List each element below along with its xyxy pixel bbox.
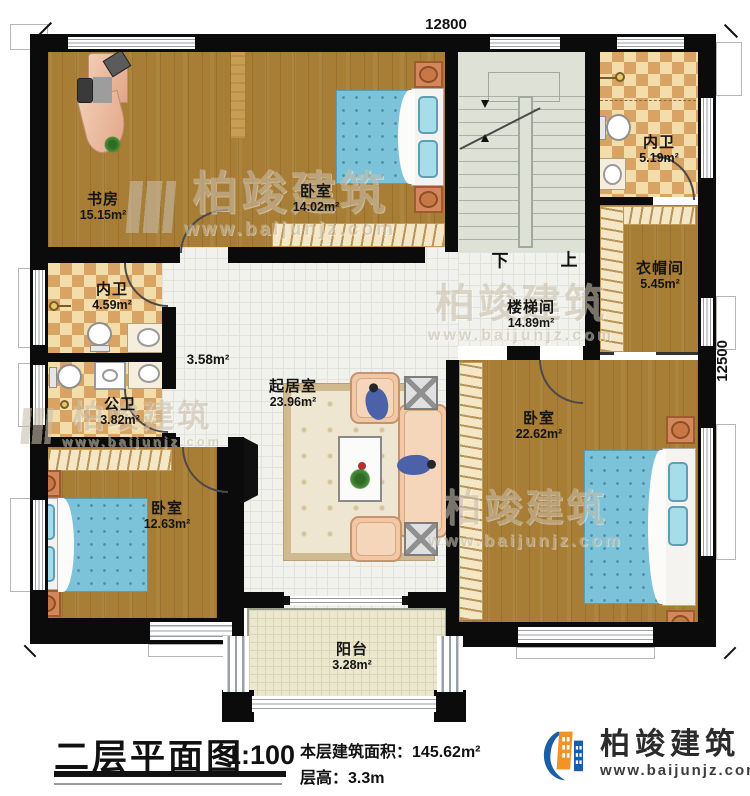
wall-bath-bedroom-b — [228, 437, 244, 447]
towel-ring-icon — [615, 72, 625, 82]
room-label-study: 书房 15.15m² — [80, 191, 127, 223]
wall-baths-right-a — [162, 307, 176, 389]
wall-bedroom-right-west — [446, 360, 459, 622]
sink-basin — [138, 364, 160, 383]
desk-plant-icon — [104, 136, 121, 153]
room-label-public-bath: 公卫 3.82m² — [100, 396, 140, 428]
room-label-living-room: 起居室 23.96m² — [269, 378, 317, 410]
bedroom-top-closet — [272, 223, 445, 247]
table-flowers-icon — [350, 468, 370, 490]
brand-logo: 柏竣建筑 www.baijunjz.com — [538, 726, 750, 784]
sill-top-right — [716, 42, 742, 96]
room-label-bedroom-top: 卧室 14.02m² — [293, 183, 340, 215]
toilet — [87, 322, 112, 346]
dimension-tick — [724, 647, 737, 660]
room-name: 起居室 — [269, 378, 317, 395]
nightstand — [666, 416, 695, 444]
room-area: 3.58m² — [187, 352, 230, 368]
room-label-hallway: 3.58m² — [187, 352, 230, 368]
side-table — [404, 376, 438, 410]
bedroom-right-wardrobe — [459, 362, 483, 620]
stair-up-label: 上 — [561, 246, 578, 271]
room-name: 阳台 — [332, 641, 372, 658]
wall-bath-bedroom-a — [30, 437, 180, 447]
wall-living-stub-right — [408, 592, 448, 608]
room-name: 内卫 — [639, 134, 679, 151]
room-label-ensuite-bath-right: 内卫 5.19m² — [639, 134, 679, 166]
floor-height-label: 层高： — [300, 770, 348, 787]
stair-break-arrow — [481, 100, 489, 108]
sink-basin — [603, 164, 622, 185]
window — [33, 365, 45, 425]
room-label-ensuite-bath-left: 内卫 4.59m² — [92, 281, 132, 313]
room-name: 卧室 — [293, 183, 340, 200]
wall-stair-right — [585, 50, 600, 360]
wall-cloak-bedroom-line-a — [600, 352, 614, 355]
computer-chair — [77, 78, 93, 103]
room-area: 14.89m² — [507, 316, 555, 330]
window — [68, 37, 195, 49]
drawing-scale: 1:100 — [226, 740, 295, 771]
balcony-railing-right — [437, 636, 463, 692]
room-area: 22.62m² — [516, 427, 563, 441]
window — [490, 37, 560, 49]
floor-height-value: 3.3m — [348, 770, 384, 787]
sill-right-low — [716, 424, 736, 560]
window — [701, 98, 713, 178]
floor-area-line: 本层建筑面积：145.62m² — [300, 738, 481, 762]
sink-basin — [137, 328, 160, 347]
wall-bedroom-right-north-b — [583, 346, 600, 360]
pillow — [668, 506, 688, 546]
room-area: 5.45m² — [636, 277, 684, 291]
window — [617, 37, 684, 49]
stair-down-label: 下 — [492, 247, 509, 272]
room-area: 23.96m² — [269, 395, 317, 409]
window — [150, 622, 232, 640]
room-label-bedroom-left: 卧室 12.63m² — [144, 500, 191, 532]
window — [701, 428, 713, 556]
sill-bottom-left — [148, 644, 234, 657]
room-name: 内卫 — [92, 281, 132, 298]
pillow — [418, 96, 438, 134]
room-name: 衣帽间 — [636, 260, 684, 277]
room-name: 书房 — [80, 191, 127, 208]
wall-bedroom-right-north-a — [507, 346, 540, 360]
nightstand — [414, 61, 443, 88]
floor-plan: 柏竣建筑 www.baijunjz.com 柏竣建筑 www.baijunjz.… — [0, 0, 750, 796]
title-underline-thin — [54, 783, 282, 785]
room-area: 12.63m² — [144, 517, 191, 531]
dimension-tick — [724, 24, 738, 38]
title-underline — [54, 771, 286, 777]
window — [33, 500, 45, 590]
wall-cloak-bedroom-line-b — [656, 352, 698, 355]
toilet — [57, 364, 82, 389]
nightstand — [414, 186, 443, 213]
balcony-railing-bottom — [252, 696, 436, 712]
room-area: 5.19m² — [639, 151, 679, 165]
room-label-cloakroom: 衣帽间 5.45m² — [636, 260, 684, 292]
flower-accent — [358, 462, 366, 470]
pillow — [418, 140, 438, 178]
wall-stair-left — [445, 50, 458, 252]
computer-monitor — [93, 77, 112, 103]
wall-inner-top-b — [228, 247, 425, 263]
room-name: 卧室 — [144, 500, 191, 517]
room-area: 14.02m² — [293, 200, 340, 214]
room-name: 楼梯间 — [507, 299, 555, 316]
room-area: 3.82m² — [100, 413, 140, 427]
partition-study-bedroom — [231, 50, 245, 138]
bed-sheet-fold — [398, 90, 415, 184]
window — [33, 270, 45, 345]
balcony-railing-left — [223, 636, 249, 692]
balcony-column — [434, 690, 466, 722]
toilet — [606, 114, 631, 141]
pillow — [668, 462, 688, 502]
cloakroom-closet-side — [600, 206, 624, 352]
wall-baths-divider — [48, 353, 162, 362]
shower-divider — [600, 100, 696, 101]
dimension-height: 12500 — [714, 340, 731, 382]
towel-bar-icon — [57, 305, 71, 307]
side-table — [404, 522, 438, 556]
wall-bath-cloak — [600, 197, 653, 205]
toilet-tank — [90, 345, 110, 352]
washing-machine — [94, 361, 126, 390]
balcony-column — [222, 690, 254, 722]
window — [701, 298, 713, 346]
sill-left-3 — [10, 498, 31, 592]
room-label-stairwell: 楼梯间 14.89m² — [507, 299, 555, 331]
wall-inner-top-a — [48, 247, 180, 263]
bedroom-left-closet — [48, 449, 172, 471]
brand-logo-icon — [538, 726, 592, 784]
room-name: 公卫 — [100, 396, 140, 413]
wall-living-stub-left — [244, 592, 284, 608]
dimension-tick — [24, 645, 37, 658]
room-area: 3.28m² — [332, 658, 372, 672]
towel-ring-icon — [60, 400, 69, 409]
bed-sheet-fold — [648, 450, 666, 604]
sill-bottom-right — [516, 647, 655, 659]
room-label-balcony: 阳台 3.28m² — [332, 641, 372, 673]
room-area: 15.15m² — [80, 208, 127, 222]
dimension-width: 12800 — [410, 16, 482, 33]
brand-name: 柏竣建筑 — [600, 730, 750, 760]
toilet-tank — [49, 367, 57, 388]
room-name: 卧室 — [516, 410, 563, 427]
floor-area-label: 本层建筑面积： — [300, 744, 412, 761]
tv — [243, 437, 258, 503]
room-area: 4.59m² — [92, 298, 132, 312]
floor-area-value: 145.62m² — [412, 744, 481, 761]
window — [518, 627, 653, 643]
floor-height-line: 层高：3.3m — [300, 764, 384, 788]
room-label-bedroom-right: 卧室 22.62m² — [516, 410, 563, 442]
stair-break-arrow — [481, 134, 489, 142]
armchair — [350, 516, 402, 562]
brand-url: www.baijunjz.com — [600, 760, 750, 781]
sliding-door — [284, 596, 408, 605]
